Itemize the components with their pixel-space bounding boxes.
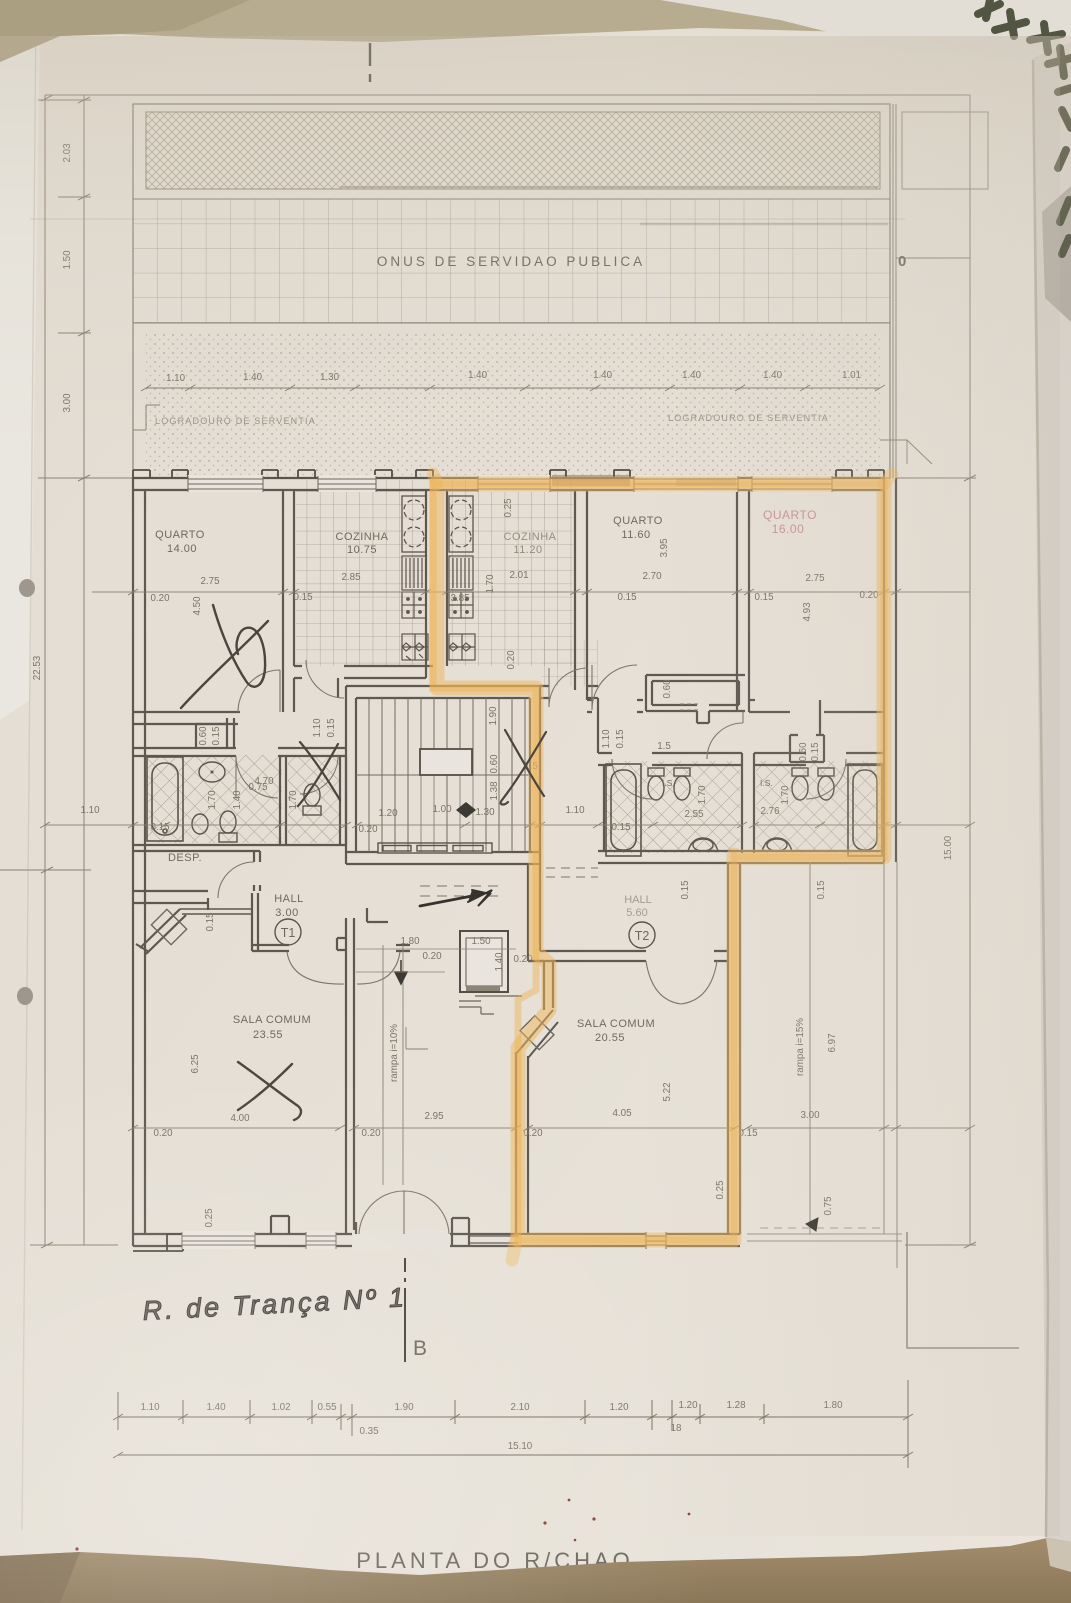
svg-text:0.15: 0.15: [617, 592, 637, 603]
svg-text:14.00: 14.00: [167, 543, 197, 555]
svg-text:COZINHA: COZINHA: [336, 531, 389, 543]
svg-text:COZINHA: COZINHA: [504, 531, 557, 543]
svg-text:QUARTO: QUARTO: [155, 529, 205, 541]
svg-text:4.50: 4.50: [192, 596, 203, 616]
svg-text:10.75: 10.75: [347, 544, 377, 556]
svg-text:0.20: 0.20: [150, 593, 170, 604]
svg-text:0.20: 0.20: [506, 650, 517, 670]
svg-text:22.53: 22.53: [32, 655, 43, 680]
svg-text:11.20: 11.20: [513, 544, 542, 556]
svg-text:3.85: 3.85: [450, 593, 470, 604]
svg-text:0.15: 0.15: [293, 592, 313, 603]
svg-text:2.01: 2.01: [509, 570, 528, 581]
svg-text:0.25: 0.25: [503, 498, 514, 518]
svg-text:1.70: 1.70: [485, 574, 496, 594]
svg-text:2.85: 2.85: [341, 572, 361, 583]
svg-text:2.75: 2.75: [200, 576, 220, 587]
